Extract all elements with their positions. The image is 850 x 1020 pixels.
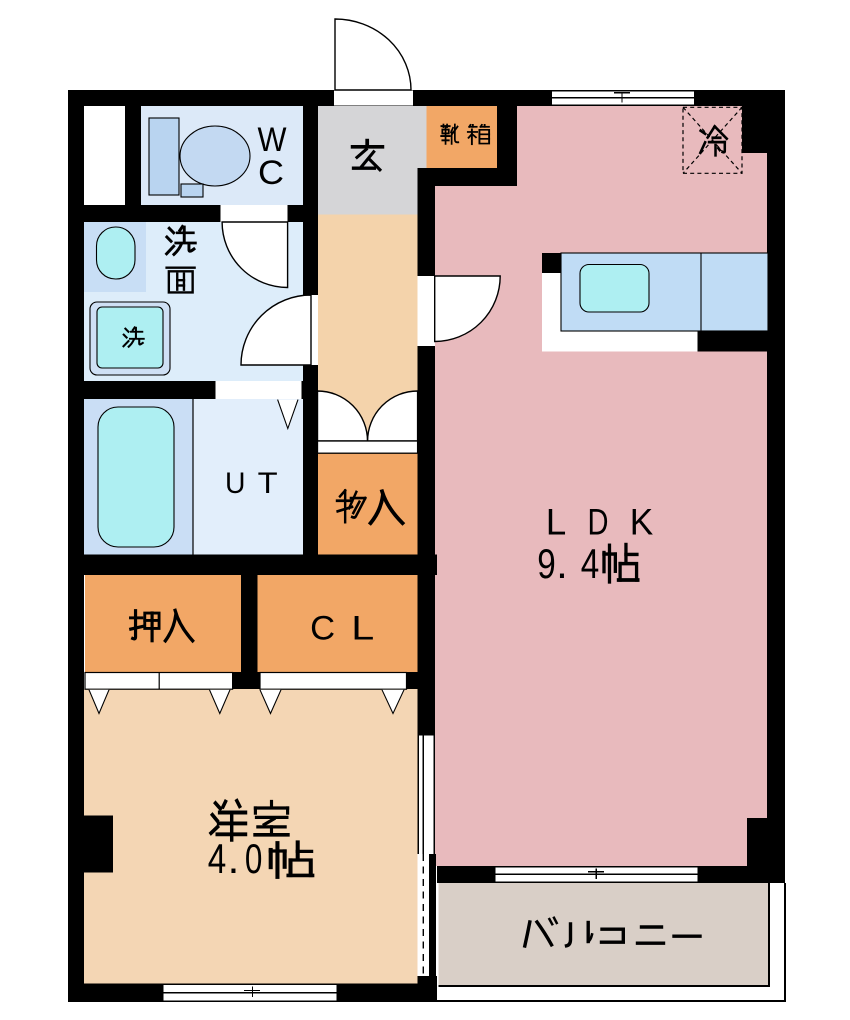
svg-text:K: K — [630, 502, 654, 543]
svg-text:4: 4 — [581, 540, 600, 587]
svg-text:L: L — [546, 502, 567, 543]
svg-text:L: L — [351, 610, 374, 648]
svg-text:C: C — [310, 610, 335, 648]
svg-text:C: C — [258, 154, 284, 192]
svg-text:.: . — [556, 540, 568, 587]
svg-text:D: D — [588, 502, 609, 543]
svg-text:0: 0 — [245, 835, 263, 882]
svg-text:.: . — [228, 835, 240, 882]
svg-text:9: 9 — [537, 540, 556, 587]
svg-text:T: T — [258, 467, 278, 500]
svg-text:4: 4 — [208, 835, 227, 882]
svg-text:U: U — [225, 467, 246, 500]
